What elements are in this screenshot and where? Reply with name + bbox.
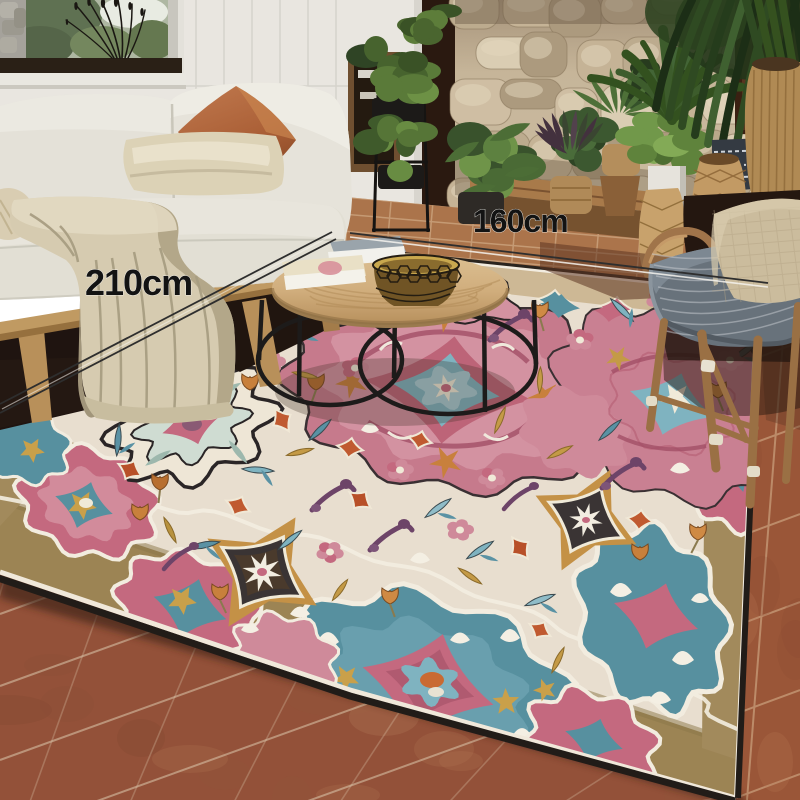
svg-text:210cm: 210cm — [85, 262, 192, 303]
svg-text:160cm: 160cm — [473, 203, 568, 239]
